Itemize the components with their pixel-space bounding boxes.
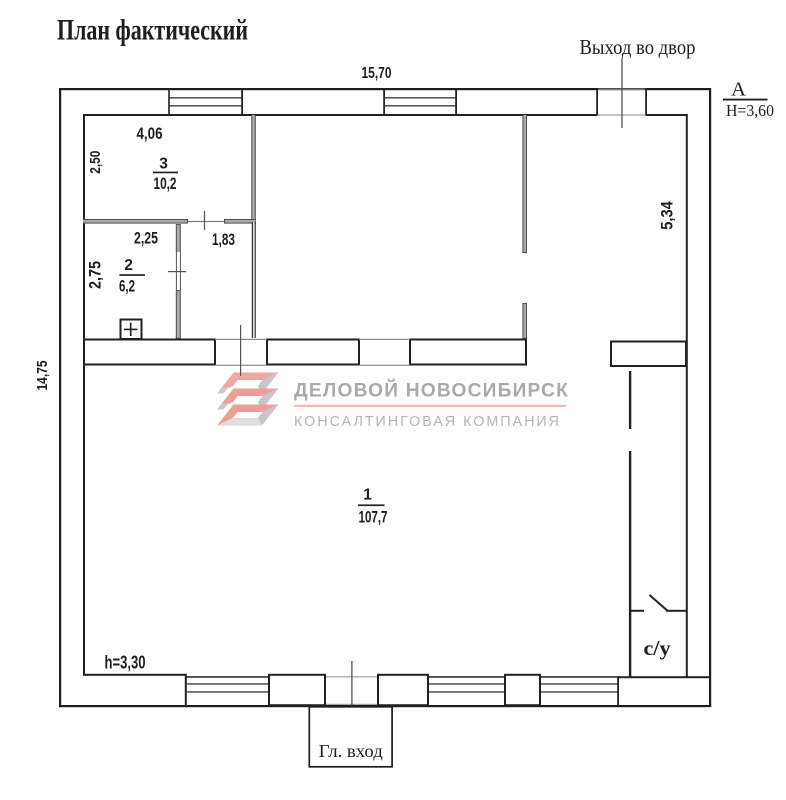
svg-text:15,70: 15,70 xyxy=(362,65,392,82)
svg-text:КОНСАЛТИНГОВАЯ КОМПАНИЯ: КОНСАЛТИНГОВАЯ КОМПАНИЯ xyxy=(294,414,561,430)
svg-text:2,25: 2,25 xyxy=(134,230,158,248)
svg-text:1,83: 1,83 xyxy=(212,231,235,249)
svg-text:3: 3 xyxy=(159,156,168,173)
svg-text:с/у: с/у xyxy=(644,636,672,660)
svg-text:4,06: 4,06 xyxy=(137,125,163,143)
svg-text:План фактический: План фактический xyxy=(57,14,248,47)
svg-text:1: 1 xyxy=(363,487,372,504)
svg-text:6,2: 6,2 xyxy=(119,278,135,296)
svg-text:ДЕЛОВОЙ НОВОСИБИРСК: ДЕЛОВОЙ НОВОСИБИРСК xyxy=(294,380,569,402)
svg-text:10,2: 10,2 xyxy=(154,175,177,193)
svg-text:107,7: 107,7 xyxy=(359,509,388,527)
svg-text:Выход во двор: Выход во двор xyxy=(580,35,696,59)
svg-text:5,34: 5,34 xyxy=(659,201,677,230)
svg-text:А: А xyxy=(731,78,746,100)
svg-text:14,75: 14,75 xyxy=(34,361,51,391)
svg-text:h=3,30: h=3,30 xyxy=(105,653,146,673)
svg-text:2,50: 2,50 xyxy=(88,151,104,174)
svg-text:Гл. вход: Гл. вход xyxy=(319,741,383,761)
svg-text:2,75: 2,75 xyxy=(87,261,105,289)
svg-text:2: 2 xyxy=(124,257,133,274)
svg-text:Н=3,60: Н=3,60 xyxy=(726,101,774,120)
